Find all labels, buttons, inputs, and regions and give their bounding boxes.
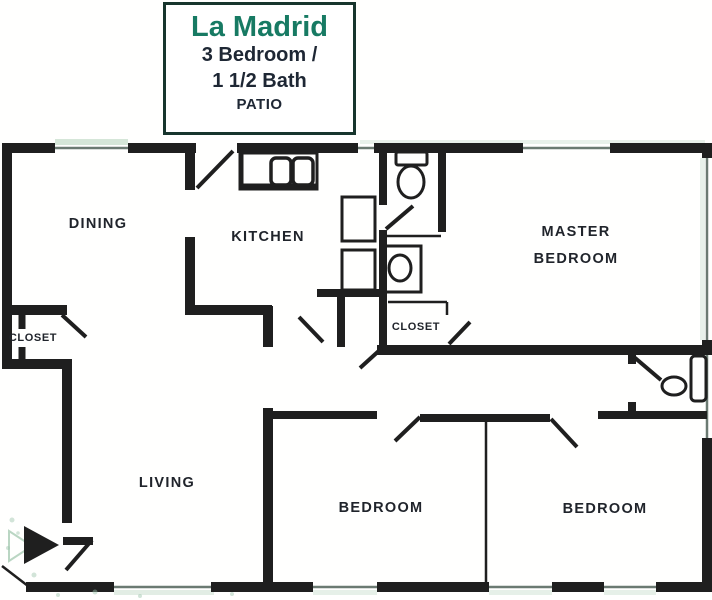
plan-name: La Madrid [191,12,328,42]
plan-subtitle-line2: 1 1/2 Bath [212,68,306,94]
room-label-bedroom-right: BEDROOM [563,501,648,517]
half-bath-toilet-icon [662,377,686,395]
room-label-bedroom-left: BEDROOM [339,500,424,516]
room-label-master-line2: BEDROOM [534,251,619,267]
plan-subtitle-line1: 3 Bedroom / [202,42,318,68]
room-label-master-line1: MASTER [541,224,610,240]
half-bath-sink-icon [691,356,706,401]
interior-walls [2,143,707,588]
exterior-walls [2,143,712,592]
room-labels: DINING KITCHEN LIVING MASTER BEDROOM BED… [9,216,648,517]
room-label-closet-master: CLOSET [392,321,440,333]
refrigerator-icon [342,197,375,241]
entry-arrow-icon [9,526,59,564]
room-label-closet-entry: CLOSET [9,332,57,344]
title-card: La Madrid 3 Bedroom / 1 1/2 Bath PATIO [163,2,356,135]
floorplan-svg: DINING KITCHEN LIVING MASTER BEDROOM BED… [0,0,712,600]
windows [55,148,707,587]
room-label-kitchen: KITCHEN [231,229,305,245]
room-label-dining: DINING [69,216,128,232]
room-label-living: LIVING [139,475,195,491]
floorplan-page: DINING KITCHEN LIVING MASTER BEDROOM BED… [0,0,712,600]
plan-subtitle-line3: PATIO [236,96,282,113]
toilet-icon [396,152,427,198]
range-icon [342,250,375,290]
scan-tint [55,139,705,595]
vanity-sink-icon [383,246,421,292]
kitchen-double-sink-icon [271,158,313,185]
